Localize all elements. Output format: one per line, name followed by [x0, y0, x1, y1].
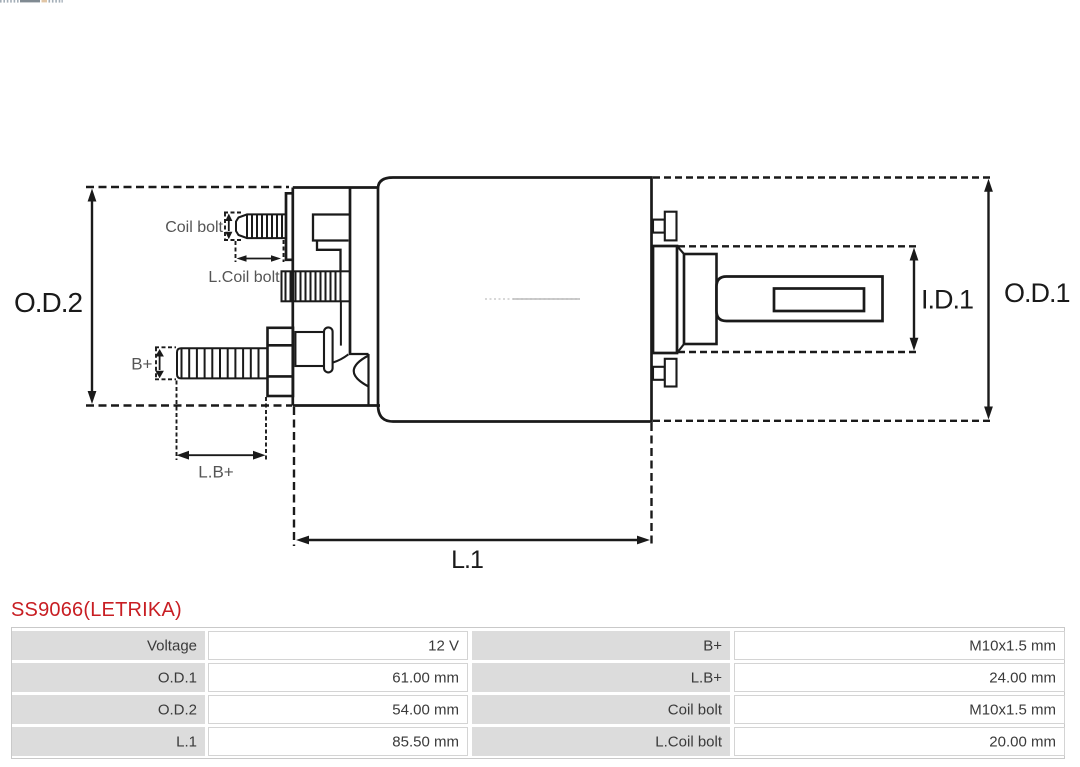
svg-text:L.Coil bolt: L.Coil bolt	[208, 269, 280, 286]
svg-text:L.1: L.1	[451, 546, 483, 574]
svg-text:L.B+: L.B+	[198, 463, 234, 482]
svg-text:B+: B+	[131, 355, 152, 374]
svg-text:O.D.2: O.D.2	[14, 287, 83, 318]
svg-text:I.D.1: I.D.1	[921, 285, 973, 315]
svg-text:O.D.1: O.D.1	[1004, 278, 1070, 308]
svg-text:Coil bolt: Coil bolt	[165, 219, 223, 236]
